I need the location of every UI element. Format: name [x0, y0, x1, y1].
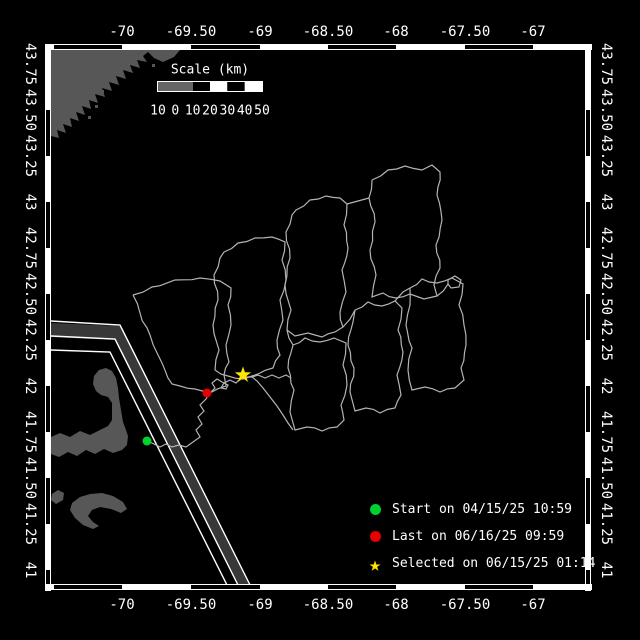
scalebar-segment: [227, 82, 244, 91]
legend-item-last: Last on 06/16/25 09:59: [364, 523, 596, 550]
lat-tick-label: 41.25: [23, 503, 37, 545]
lon-tick-label: -70: [109, 598, 134, 612]
frame-segment: [465, 585, 533, 589]
track-line: [252, 377, 293, 430]
island-speck: [95, 105, 98, 108]
frame-segment: [328, 45, 396, 49]
lat-tick-label: 42.50: [23, 273, 37, 315]
island-speck: [88, 116, 91, 119]
frame-segment: [46, 386, 50, 432]
lat-tick-label: 43: [599, 194, 613, 211]
island-speck: [100, 90, 104, 93]
lat-tick-label: 43.25: [599, 135, 613, 177]
lat-tick-label: 43.25: [23, 135, 37, 177]
track-line: [347, 198, 369, 204]
scalebar-segment: [193, 82, 210, 91]
lat-tick-label: 41.25: [599, 503, 613, 545]
frame-segment: [46, 478, 50, 524]
track-line: [288, 338, 347, 431]
lon-tick-label: -67.50: [440, 598, 491, 612]
lat-tick-label: 41.75: [23, 411, 37, 453]
lon-tick-label: -70: [109, 25, 134, 39]
frame-segment: [46, 294, 50, 340]
lon-tick-label: -68.50: [303, 598, 354, 612]
lat-tick-label: 41.50: [599, 457, 613, 499]
scalebar-title: Scale (km): [171, 63, 249, 78]
land-polygon: [51, 368, 128, 457]
land-polygon: [51, 50, 180, 138]
lat-tick-label: 41.50: [23, 457, 37, 499]
scalebar-segment: [245, 82, 262, 91]
frame-segment: [586, 294, 590, 340]
scalebar-segment: [175, 82, 192, 91]
lat-tick-label: 42.50: [599, 273, 613, 315]
lon-tick-label: -68.50: [303, 25, 354, 39]
frame-segment: [46, 202, 50, 248]
frame-segment: [54, 45, 122, 49]
land-polygon: [70, 493, 127, 529]
lon-tick-label: -67: [520, 598, 545, 612]
lon-tick-label: -67.50: [440, 25, 491, 39]
start-dot-icon: [364, 504, 386, 515]
legend-label-last: Last on 06/16/25 09:59: [392, 529, 564, 544]
scalebar-tick-label: 50: [254, 104, 270, 119]
track-line: [369, 165, 442, 299]
lat-tick-label: 43.75: [23, 43, 37, 85]
track-line: [406, 278, 466, 392]
lat-tick-label: 43.75: [599, 43, 613, 85]
legend-item-start: Start on 04/15/25 10:59: [364, 496, 596, 523]
frame-segment: [586, 110, 590, 156]
lat-tick-label: 42.75: [23, 227, 37, 269]
start-position-dot: [143, 437, 152, 446]
track-line: [285, 196, 348, 337]
legend: Start on 04/15/25 10:59 Last on 06/16/25…: [364, 496, 596, 577]
island-speck: [112, 80, 116, 83]
frame-segment: [191, 45, 260, 49]
selected-star-icon: ★: [364, 554, 386, 574]
lon-tick-label: -68: [383, 598, 408, 612]
lat-tick-label: 41.75: [599, 411, 613, 453]
lat-tick-label: 43.50: [23, 89, 37, 131]
frame-segment: [465, 45, 533, 49]
lat-tick-label: 41: [599, 562, 613, 579]
frame-segment: [54, 585, 122, 589]
shipping-lane-band: [51, 323, 252, 591]
track-line: [213, 237, 286, 379]
shipping-lane-line: [51, 336, 241, 591]
lat-tick-label: 42.75: [599, 227, 613, 269]
lon-tick-label: -68: [383, 25, 408, 39]
scalebar-segment: [158, 82, 175, 91]
scalebar-segment: [210, 82, 227, 91]
frame-segment: [328, 585, 396, 589]
frame-segment: [586, 202, 590, 248]
island-speck: [152, 64, 155, 67]
last-position-dot: [203, 389, 212, 398]
track-line: [252, 375, 291, 378]
scalebar-tick-label: 30: [220, 104, 236, 119]
frame-segment: [46, 570, 50, 584]
lon-tick-label: -69.50: [166, 598, 217, 612]
track-line: [437, 284, 448, 296]
frame-segment: [46, 110, 50, 156]
track-line: [133, 278, 231, 393]
frame-segment: [191, 585, 260, 589]
lon-tick-label: -69: [247, 598, 272, 612]
scalebar-tick-label: 40: [237, 104, 253, 119]
scalebar-tick-label: 10: [185, 104, 201, 119]
lat-tick-label: 41: [23, 562, 37, 579]
scalebar-tick-label: 20: [202, 104, 218, 119]
scalebar-tick-label: 0: [171, 104, 179, 119]
frame-segment: [586, 386, 590, 432]
lat-tick-label: 43.50: [599, 89, 613, 131]
legend-item-selected: ★ Selected on 06/15/25 01:14: [364, 550, 596, 577]
lon-tick-label: -69.50: [166, 25, 217, 39]
scalebar-tick-label: 10: [150, 104, 166, 119]
lat-tick-label: 42: [23, 378, 37, 395]
lon-tick-label: -69: [247, 25, 272, 39]
track-line: [348, 301, 403, 413]
last-dot-icon: [364, 531, 386, 542]
tracking-map: Scale (km) -70-70-69.50-69.50-69-69-68.5…: [0, 0, 640, 640]
land-polygon: [51, 490, 64, 504]
lon-tick-label: -67: [520, 25, 545, 39]
legend-label-start: Start on 04/15/25 10:59: [392, 502, 572, 517]
lat-tick-label: 42: [599, 378, 613, 395]
lat-tick-label: 43: [23, 194, 37, 211]
lat-tick-label: 42.25: [599, 319, 613, 361]
legend-label-selected: Selected on 06/15/25 01:14: [392, 556, 596, 571]
lat-tick-label: 42.25: [23, 319, 37, 361]
